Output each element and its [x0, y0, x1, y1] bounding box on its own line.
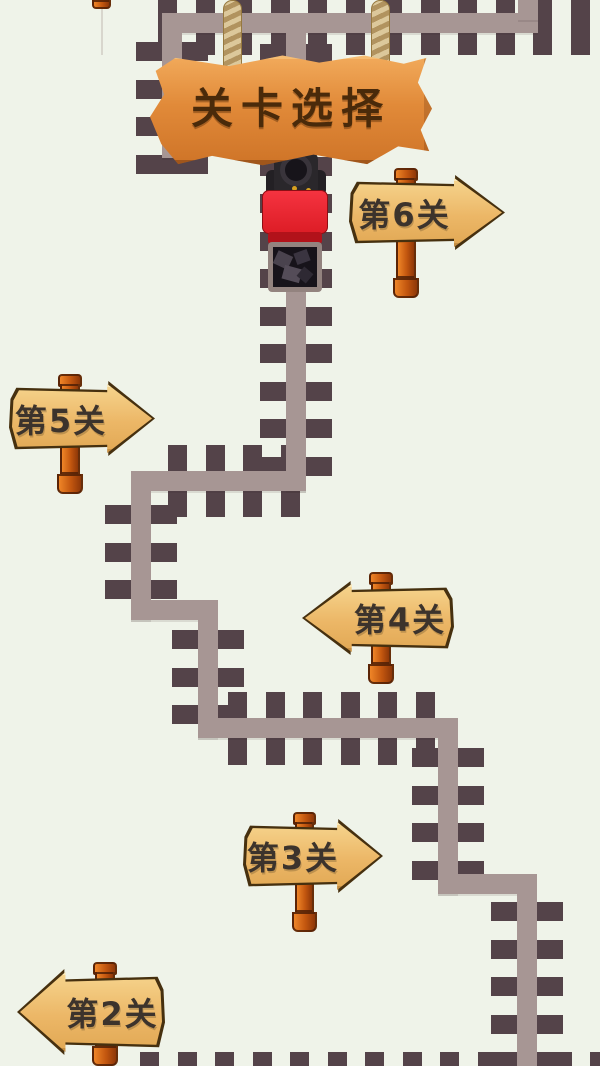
track-bed [198, 718, 458, 738]
title-banner: 关卡选择 [150, 52, 432, 170]
track-tie [290, 1052, 309, 1066]
sign-label: 第3关 [246, 822, 340, 890]
sign-post-foot [368, 664, 394, 684]
coal-chunk [293, 249, 310, 265]
level-select-screen: 关卡选择 第6关第5关第4关第3关第2关 [0, 0, 600, 1066]
track-tie [365, 1052, 384, 1066]
track-tie [140, 1052, 159, 1066]
track-bed [162, 13, 538, 33]
track-tie [478, 1052, 497, 1066]
sign-label: 第5关 [12, 384, 110, 453]
track-tie [571, 0, 590, 55]
sign-post-foot [292, 912, 317, 932]
track-tie [590, 1052, 600, 1066]
track-bed [131, 471, 151, 620]
track-bed [131, 471, 306, 491]
track-bed [438, 718, 458, 894]
track-bed [518, 0, 538, 20]
track-bed [517, 874, 537, 1066]
track-tie [440, 1052, 459, 1066]
offscreen-sign-post-stub [92, 0, 111, 9]
track-tie [215, 1052, 234, 1066]
train-cab [262, 190, 328, 234]
track-tie [178, 1052, 197, 1066]
sign-label: 第2关 [63, 972, 162, 1052]
sign-post-foot [57, 474, 83, 494]
track-tie [403, 1052, 422, 1066]
sign-label: 第4关 [349, 584, 451, 652]
track-tie [553, 1052, 572, 1066]
page-title: 关卡选择 [150, 52, 432, 170]
track-tie [328, 1052, 347, 1066]
coal-pile [273, 247, 317, 287]
offscreen-sign-post-line [101, 9, 103, 55]
sign-label: 第6关 [352, 178, 457, 247]
sign-post-foot [393, 278, 419, 298]
track-tie [253, 1052, 272, 1066]
